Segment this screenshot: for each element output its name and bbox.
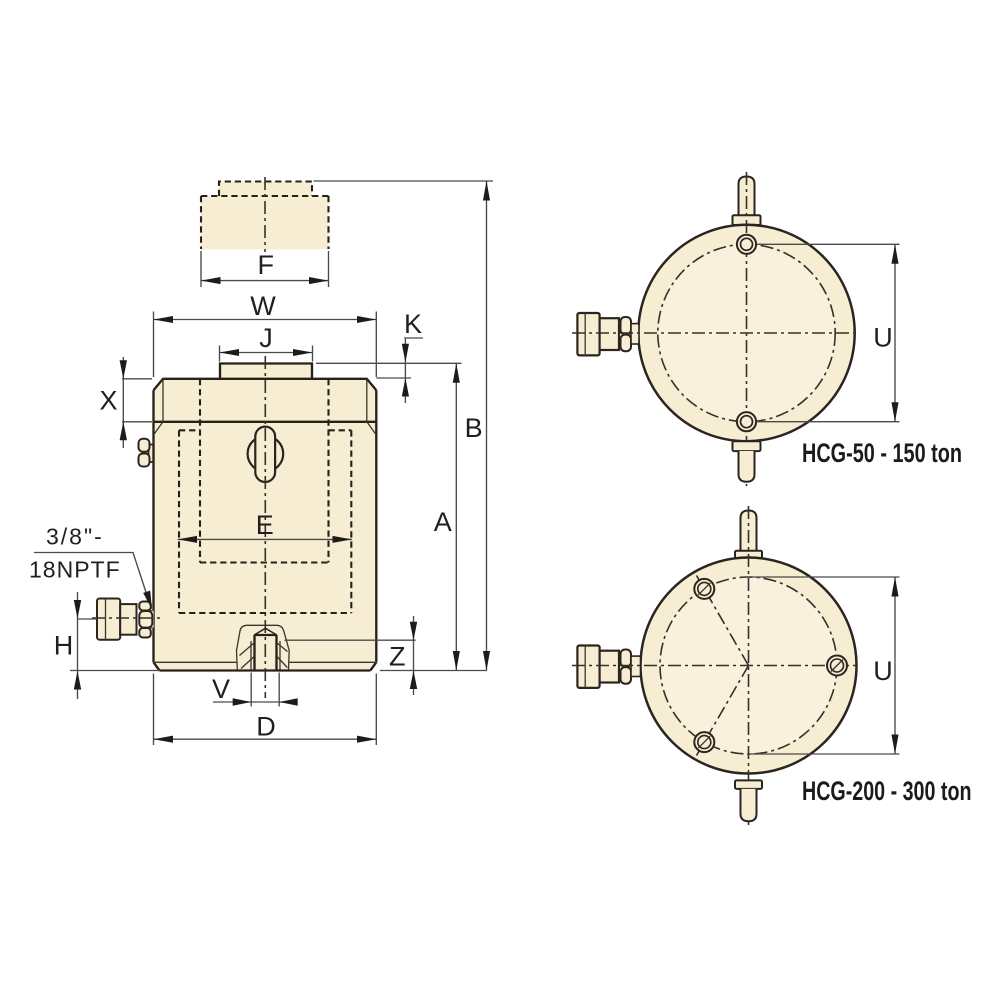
svg-text:U: U	[873, 323, 893, 353]
svg-text:B: B	[465, 413, 483, 443]
svg-text:X: X	[99, 386, 117, 416]
svg-text:V: V	[212, 674, 230, 704]
svg-text:D: D	[256, 712, 276, 742]
svg-text:3/8"-: 3/8"-	[46, 524, 104, 550]
svg-text:K: K	[404, 309, 422, 339]
svg-text:W: W	[250, 291, 276, 321]
svg-text:Z: Z	[389, 642, 406, 672]
svg-text:H: H	[54, 631, 74, 661]
svg-text:J: J	[259, 323, 273, 353]
svg-text:HCG-50 - 150 ton: HCG-50 - 150 ton	[802, 438, 962, 468]
svg-text:A: A	[434, 507, 452, 537]
svg-text:HCG-200 - 300 ton: HCG-200 - 300 ton	[802, 776, 972, 806]
svg-text:18NPTF: 18NPTF	[29, 557, 121, 583]
svg-text:U: U	[873, 656, 893, 686]
svg-text:F: F	[258, 250, 275, 280]
svg-text:E: E	[256, 510, 274, 540]
